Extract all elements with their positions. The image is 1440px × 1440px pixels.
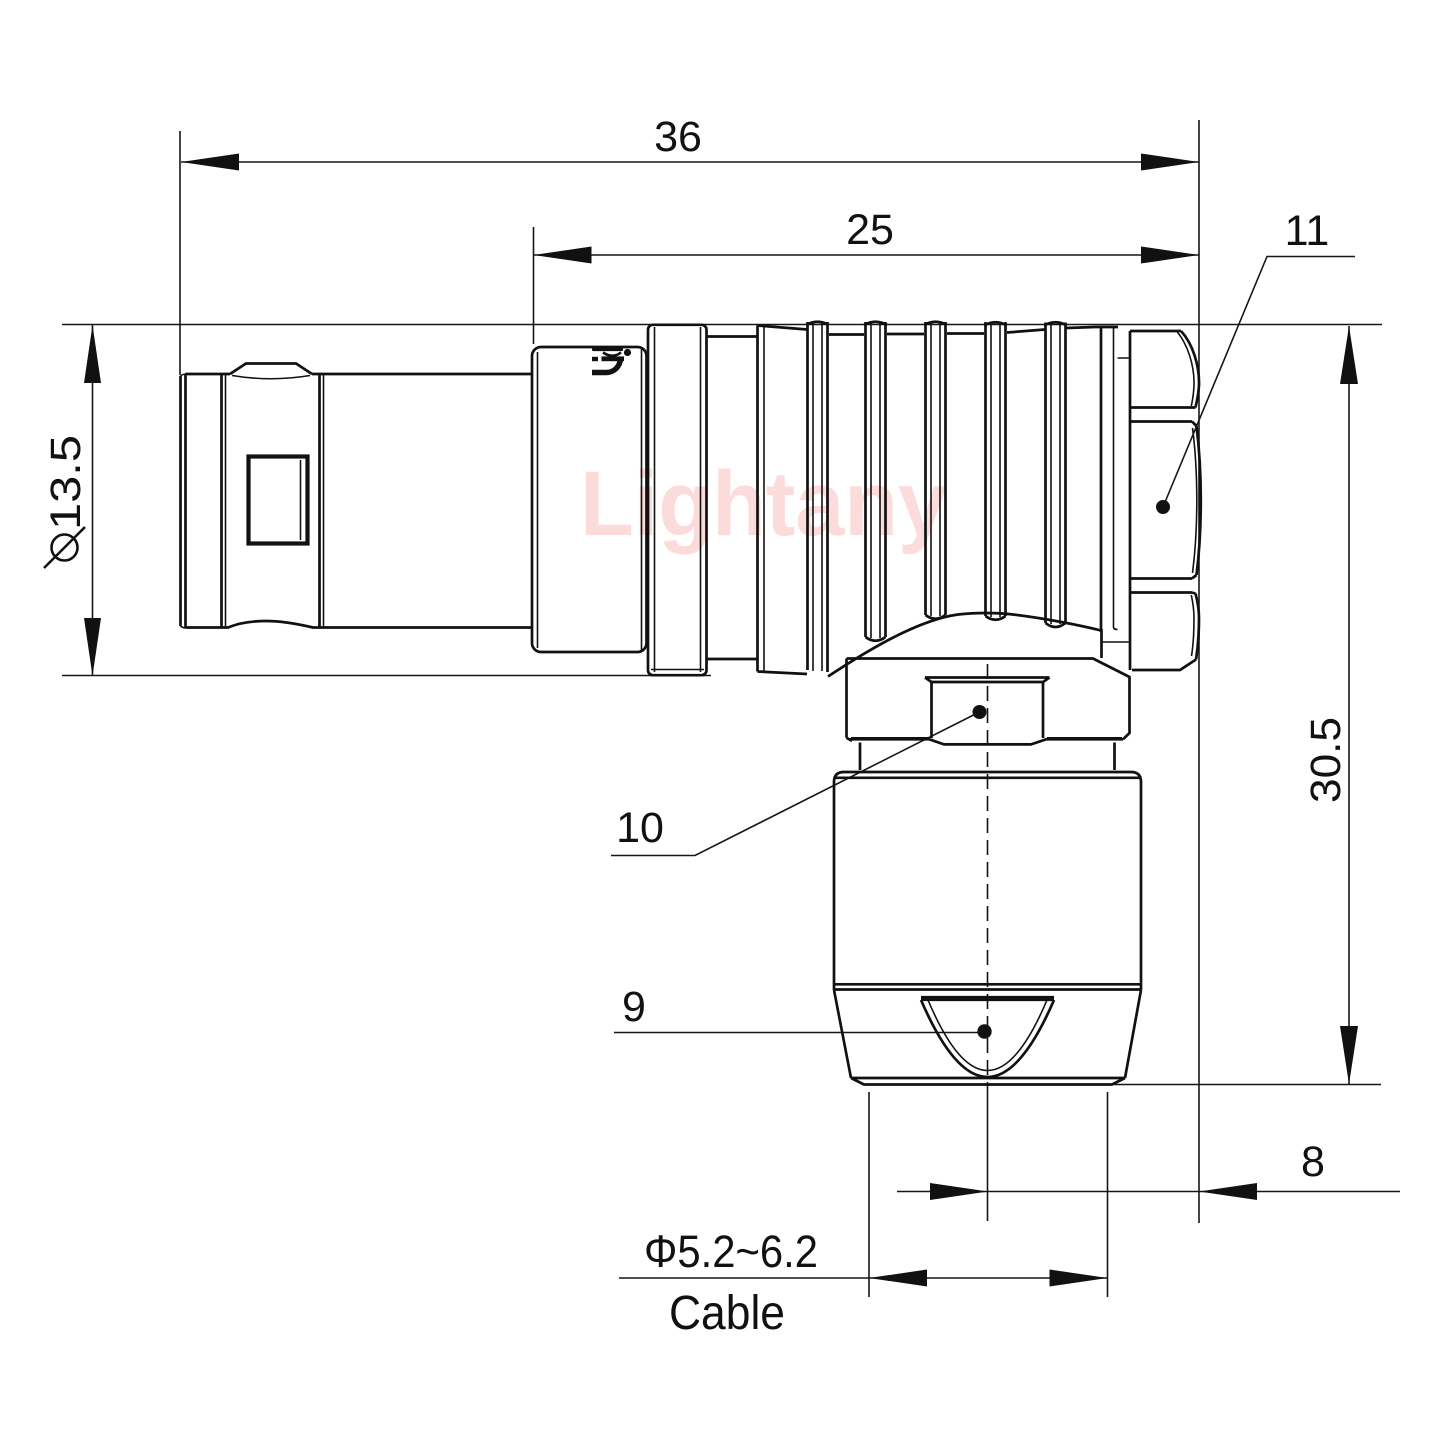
svg-text:11: 11 bbox=[1285, 207, 1330, 255]
svg-text:8: 8 bbox=[1301, 1138, 1325, 1186]
svg-text:30.5: 30.5 bbox=[1302, 717, 1350, 803]
svg-text:36: 36 bbox=[654, 113, 702, 161]
svg-text:Φ5.2~6.2: Φ5.2~6.2 bbox=[644, 1226, 818, 1277]
svg-text:10: 10 bbox=[616, 804, 664, 852]
svg-text:9: 9 bbox=[622, 983, 646, 1031]
svg-text:13.5: 13.5 bbox=[42, 435, 90, 530]
svg-text:Cable: Cable bbox=[669, 1287, 785, 1340]
svg-text:25: 25 bbox=[846, 206, 894, 254]
